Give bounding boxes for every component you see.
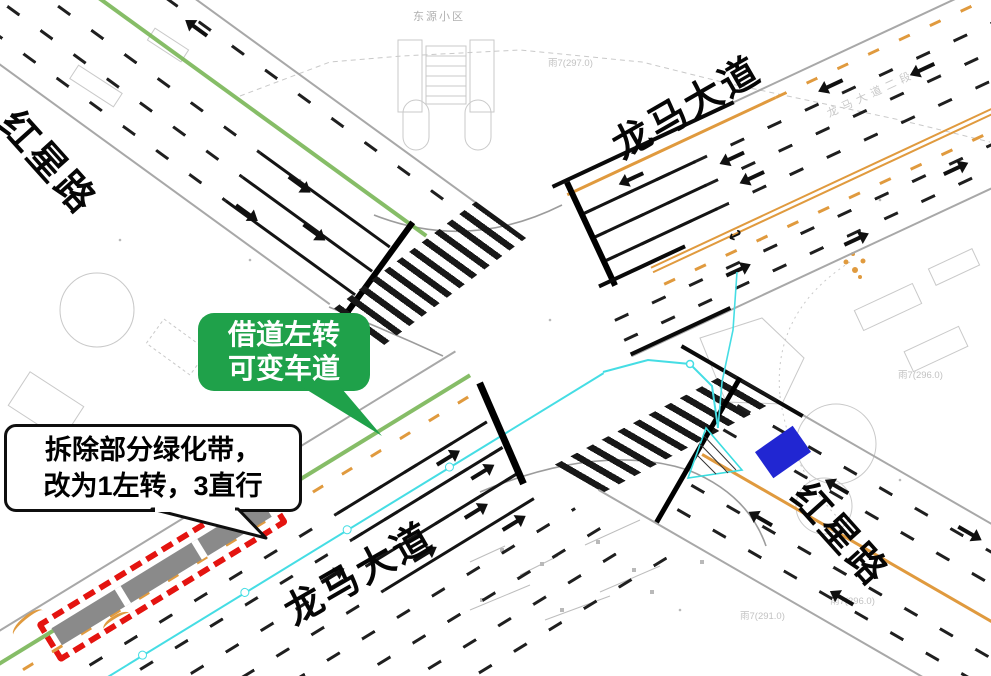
traffic-plan: 东源小区 雨7(297.0) 雨7(296.0) 雨7(291.0) 雨7(29… bbox=[0, 0, 991, 676]
callout-tail-white bbox=[0, 0, 991, 676]
